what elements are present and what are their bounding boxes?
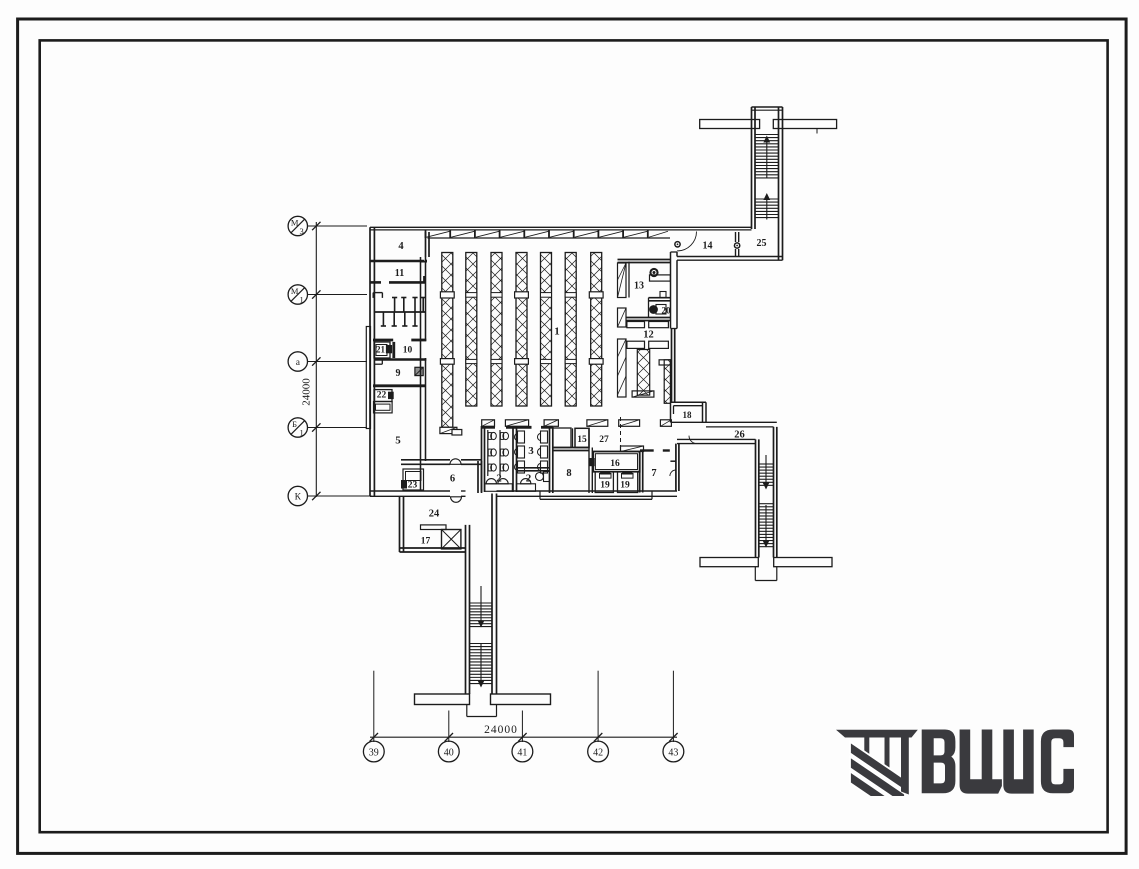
- svg-text:М: М: [291, 218, 299, 228]
- svg-text:22: 22: [377, 391, 387, 401]
- svg-text:8: 8: [566, 468, 571, 479]
- svg-text:39: 39: [369, 747, 379, 758]
- svg-text:3: 3: [299, 226, 303, 236]
- svg-text:5: 5: [395, 435, 401, 447]
- svg-text:19: 19: [600, 481, 610, 491]
- svg-text:10: 10: [403, 346, 413, 356]
- svg-text:14: 14: [703, 241, 713, 252]
- svg-text:24: 24: [429, 509, 440, 520]
- svg-text:19: 19: [620, 481, 630, 491]
- svg-text:25: 25: [757, 238, 767, 249]
- svg-text:43: 43: [668, 747, 678, 758]
- svg-text:20: 20: [662, 306, 672, 316]
- svg-text:4: 4: [398, 241, 404, 252]
- svg-text:27: 27: [599, 435, 609, 445]
- svg-text:24000: 24000: [301, 378, 313, 406]
- svg-text:13: 13: [634, 281, 644, 292]
- svg-text:Б: Б: [292, 419, 297, 429]
- svg-text:1: 1: [554, 326, 560, 338]
- svg-text:12: 12: [643, 330, 654, 341]
- svg-text:1: 1: [299, 295, 303, 305]
- svg-text:2: 2: [496, 473, 502, 485]
- svg-text:16: 16: [610, 459, 620, 469]
- svg-text:17: 17: [421, 537, 431, 547]
- svg-text:7: 7: [651, 468, 656, 479]
- svg-text:23: 23: [408, 481, 418, 491]
- svg-text:М: М: [291, 286, 299, 296]
- svg-text:1: 1: [299, 428, 303, 438]
- svg-text:9: 9: [396, 368, 401, 379]
- svg-text:24000: 24000: [484, 724, 518, 736]
- svg-text:21: 21: [376, 345, 386, 355]
- svg-text:2: 2: [526, 473, 532, 485]
- svg-text:18: 18: [683, 410, 693, 420]
- svg-text:42: 42: [593, 747, 603, 758]
- svg-text:40: 40: [444, 747, 454, 758]
- svg-text:6: 6: [450, 474, 455, 485]
- svg-text:15: 15: [577, 435, 587, 445]
- svg-text:К: К: [295, 493, 302, 503]
- svg-text:41: 41: [517, 747, 527, 758]
- svg-text:11: 11: [395, 268, 404, 279]
- svg-text:3: 3: [528, 445, 534, 457]
- svg-text:26: 26: [734, 430, 745, 441]
